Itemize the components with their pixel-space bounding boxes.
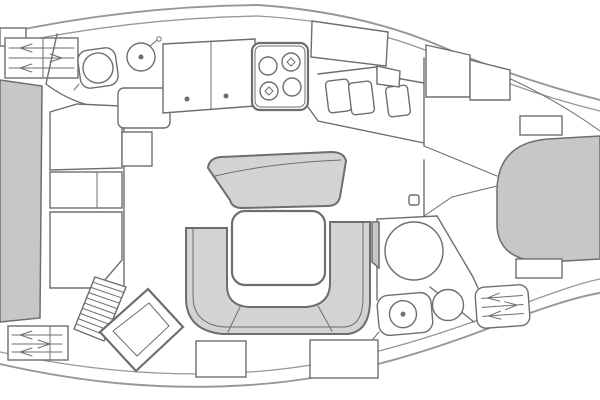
forward-toilet-flush [373,332,379,339]
galley-cabinet [163,39,255,113]
vent-hatch-aft-bottom [8,326,68,360]
under-seat-locker-left [196,341,246,377]
stove-burner [283,78,301,96]
aft-washbasin [127,37,161,71]
galley-counter [308,67,424,143]
galley [163,21,424,143]
cabin-floor-edge [424,146,497,176]
saloon-table [232,211,325,285]
galley-double-sink [325,79,375,116]
companionway [74,277,183,371]
berth-shelf-bottom [516,259,562,278]
cabin-floor-edge [424,186,497,216]
vent-hatch-forward [475,284,531,329]
aft-double-berth [0,80,42,322]
galley-top-locker-small [377,66,400,87]
stove-burner [282,53,300,71]
wardrobe-under-head [118,88,170,128]
cabinet-handle-dot [185,97,190,102]
locker-aft-3 [50,212,122,288]
stove-burner [260,82,278,100]
aft-toilet-flush [74,84,79,90]
galley-single-sink [385,85,410,117]
aft-cabin-step [122,132,152,166]
shower-basin [385,222,443,280]
stove-burner [259,57,277,75]
forward-washbasin [433,290,464,321]
saloon [186,152,378,378]
vent-hatch-aft-top [5,38,78,78]
head-side-panel [372,222,379,268]
locker-aft-2 [50,172,122,208]
galley-stove [252,43,308,110]
locker-aft-1 [50,104,122,170]
storage-aft [50,88,170,293]
bow-locker-1 [426,45,470,97]
door-handle [409,195,419,205]
forward-bench [208,152,346,208]
berth-shelf-top [520,116,562,135]
v-berth [497,136,600,262]
forward-toilet [376,292,433,337]
cabinet-handle-dot [224,94,229,99]
galley-top-locker [311,21,388,66]
under-seat-locker-right [310,340,378,378]
yacht-floorplan [0,0,600,400]
bow-locker-2 [470,60,510,100]
aft-toilet [77,47,120,90]
